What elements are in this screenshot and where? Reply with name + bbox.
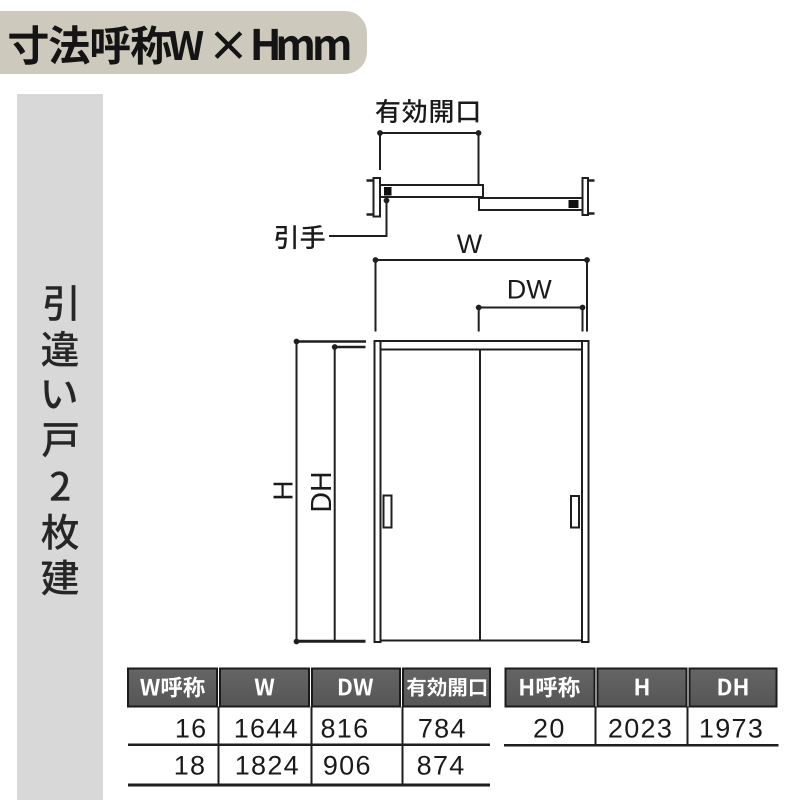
svg-text:2023: 2023: [608, 714, 673, 744]
svg-text:1644: 1644: [234, 714, 299, 744]
svg-text:H: H: [268, 480, 299, 500]
svg-text:20: 20: [533, 714, 566, 744]
svg-text:16: 16: [175, 714, 208, 744]
svg-text:906: 906: [323, 750, 372, 780]
svg-text:1824: 1824: [235, 750, 300, 780]
svg-text:874: 874: [417, 750, 466, 780]
svg-text:784: 784: [418, 714, 467, 744]
svg-text:DW: DW: [507, 275, 552, 305]
svg-text:W: W: [457, 229, 483, 259]
svg-text:816: 816: [320, 714, 369, 744]
svg-text:1973: 1973: [699, 714, 764, 744]
svg-text:DH: DH: [306, 471, 338, 512]
svg-text:18: 18: [174, 750, 207, 780]
